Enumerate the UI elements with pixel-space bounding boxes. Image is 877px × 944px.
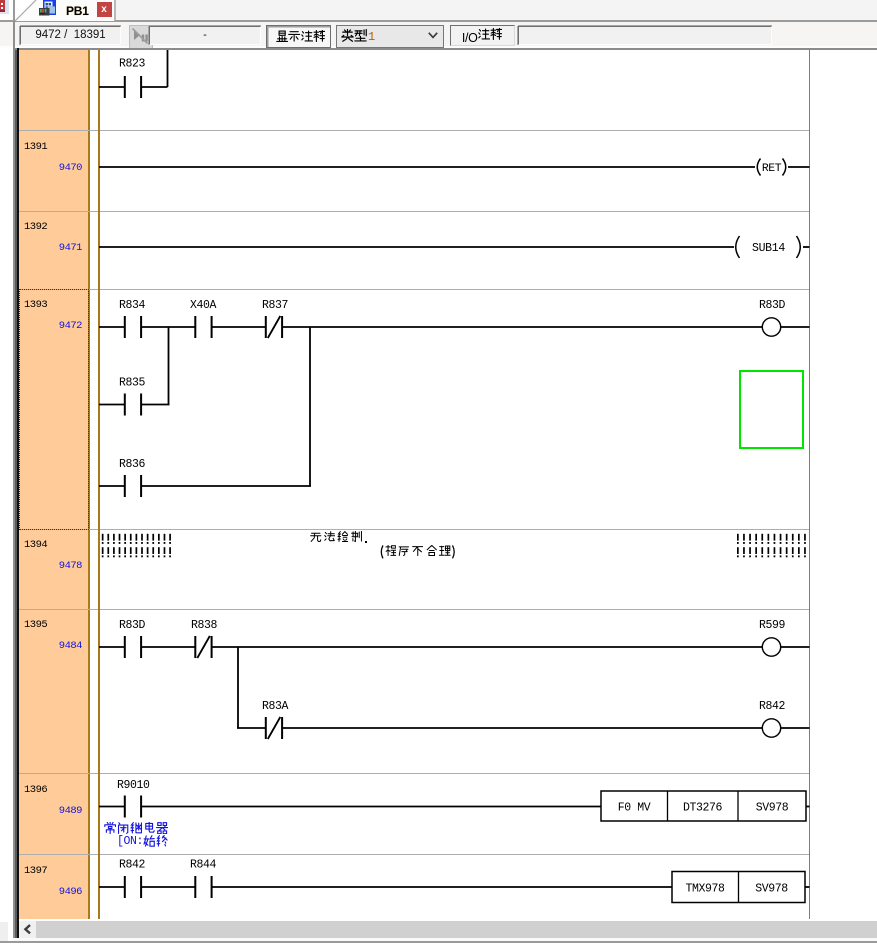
svg-text:R838: R838 <box>191 619 218 632</box>
svg-text:R842: R842 <box>119 859 146 872</box>
svg-text:R83A: R83A <box>262 700 289 713</box>
svg-text:R834: R834 <box>119 299 146 312</box>
svg-text:DT3276: DT3276 <box>683 802 723 815</box>
svg-text:R9010: R9010 <box>117 779 150 792</box>
svg-text:SV978: SV978 <box>756 802 789 815</box>
svg-text:RET: RET <box>762 163 782 175</box>
svg-text:R83D: R83D <box>119 619 146 632</box>
svg-text:R844: R844 <box>190 859 217 872</box>
svg-text:R599: R599 <box>759 619 786 632</box>
svg-text:X40A: X40A <box>190 299 217 312</box>
svg-text:F0 MV: F0 MV <box>618 802 651 815</box>
svg-text:R842: R842 <box>759 700 786 713</box>
svg-text:TMX978: TMX978 <box>685 883 725 896</box>
svg-text:SV978: SV978 <box>755 883 788 896</box>
svg-text:SUB14: SUB14 <box>752 242 785 255</box>
svg-text:R823: R823 <box>119 58 146 71</box>
svg-text:R836: R836 <box>119 458 146 471</box>
svg-text:R837: R837 <box>262 299 288 312</box>
svg-text:R835: R835 <box>119 377 146 390</box>
svg-text:R83D: R83D <box>759 299 786 312</box>
